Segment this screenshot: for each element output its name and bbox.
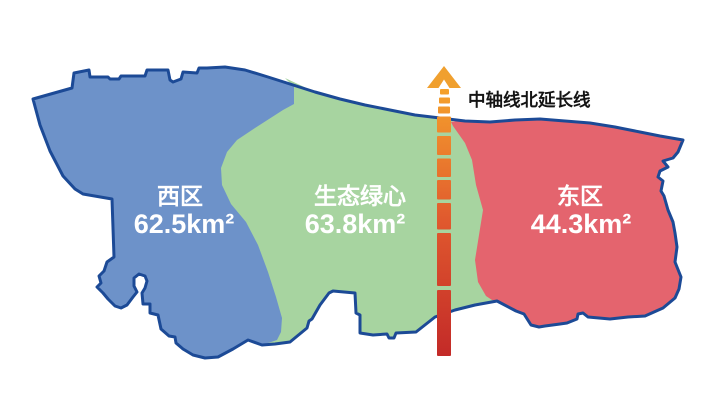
axis-label: 中轴线北延长线 <box>468 90 591 110</box>
district-map: 中轴线北延长线 西区 62.5km² 生态绿心 63.8km² 东区 44.3k… <box>0 0 718 407</box>
map-canvas: 中轴线北延长线 西区 62.5km² 生态绿心 63.8km² 东区 44.3k… <box>0 0 718 407</box>
green-heart-region-area: 63.8km² <box>305 209 406 239</box>
west-region-area: 62.5km² <box>134 209 235 239</box>
east-region-area: 44.3km² <box>531 209 632 239</box>
west-region-name: 西区 <box>157 183 203 209</box>
north-arrow-icon <box>427 66 461 88</box>
central-axis-dashed-line <box>437 89 451 356</box>
east-region-name: 东区 <box>557 183 603 209</box>
green-heart-region-name: 生态绿心 <box>314 183 406 209</box>
